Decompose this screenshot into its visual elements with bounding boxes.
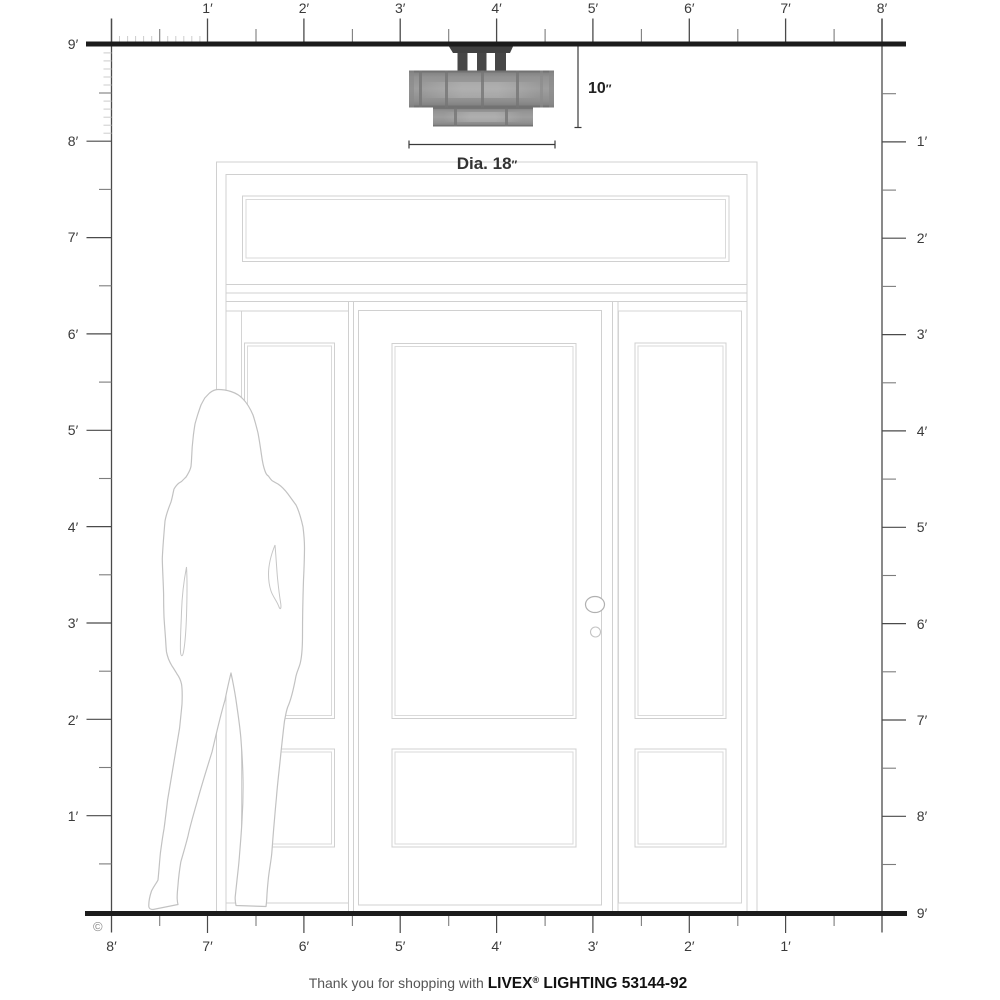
svg-text:4′: 4′ (917, 423, 928, 439)
svg-text:5′: 5′ (68, 422, 79, 438)
svg-text:1′: 1′ (68, 808, 79, 824)
svg-text:5′: 5′ (395, 938, 406, 954)
svg-text:Dia. 18″: Dia. 18″ (457, 154, 518, 173)
svg-text:3′: 3′ (395, 0, 406, 16)
svg-text:3′: 3′ (588, 938, 599, 954)
svg-text:8′: 8′ (68, 133, 79, 149)
svg-text:1′: 1′ (202, 0, 213, 16)
svg-text:9′: 9′ (68, 36, 79, 52)
svg-text:7′: 7′ (202, 938, 213, 954)
svg-text:7′: 7′ (68, 229, 79, 245)
svg-text:Thank you for shopping with LI: Thank you for shopping with LIVEX® LIGHT… (309, 975, 688, 992)
svg-text:4′: 4′ (68, 519, 79, 535)
svg-text:©: © (93, 919, 103, 934)
svg-text:4′: 4′ (491, 0, 502, 16)
svg-text:3′: 3′ (917, 326, 928, 342)
svg-text:7′: 7′ (917, 712, 928, 728)
svg-text:8′: 8′ (106, 938, 117, 954)
svg-text:7′: 7′ (780, 0, 791, 16)
svg-text:4′: 4′ (491, 938, 502, 954)
svg-text:3′: 3′ (68, 615, 79, 631)
svg-text:6′: 6′ (684, 0, 695, 16)
svg-text:8′: 8′ (877, 0, 888, 16)
svg-text:2′: 2′ (299, 0, 310, 16)
svg-text:2′: 2′ (917, 230, 928, 246)
svg-text:6′: 6′ (299, 938, 310, 954)
svg-text:10″: 10″ (588, 80, 612, 97)
svg-text:6′: 6′ (917, 616, 928, 632)
svg-text:1′: 1′ (917, 133, 928, 149)
svg-text:8′: 8′ (917, 808, 928, 824)
svg-text:2′: 2′ (684, 938, 695, 954)
svg-text:6′: 6′ (68, 326, 79, 342)
svg-text:9′: 9′ (917, 905, 928, 921)
svg-text:5′: 5′ (588, 0, 599, 16)
svg-text:5′: 5′ (917, 519, 928, 535)
svg-text:1′: 1′ (780, 938, 791, 954)
svg-text:2′: 2′ (68, 712, 79, 728)
